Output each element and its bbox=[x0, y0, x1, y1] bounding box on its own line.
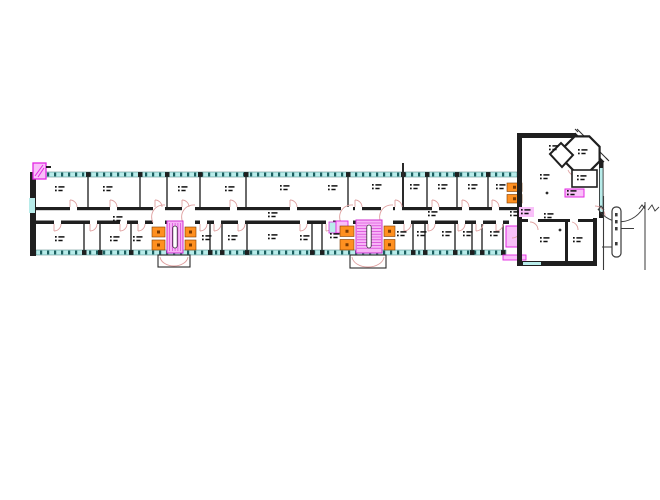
wing-walls bbox=[29, 172, 36, 256]
corridor-walls bbox=[36, 207, 522, 224]
road-and-driveway bbox=[598, 196, 659, 270]
floor-plan-page bbox=[0, 0, 660, 500]
door-arcs bbox=[54, 200, 503, 231]
stair-cores bbox=[152, 220, 395, 268]
head-building bbox=[517, 129, 609, 266]
floor-plan-drawing bbox=[0, 0, 660, 500]
